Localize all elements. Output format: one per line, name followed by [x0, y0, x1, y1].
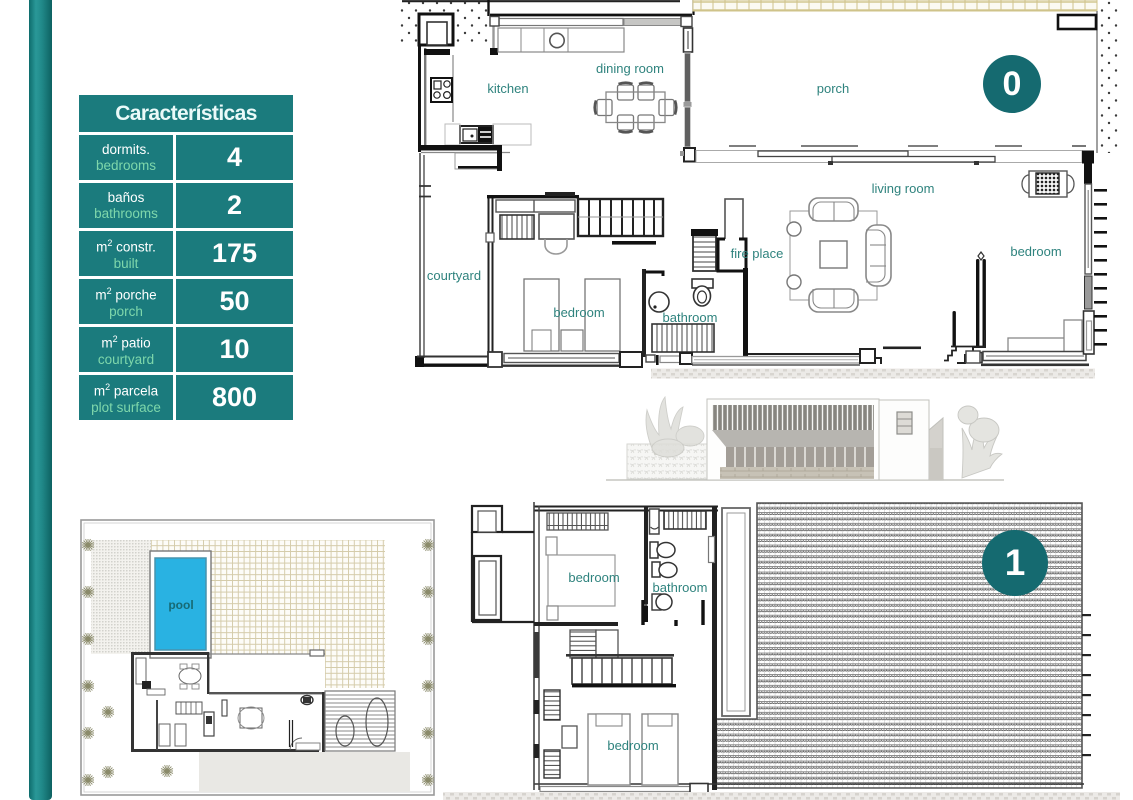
svg-text:fire place: fire place	[731, 246, 784, 261]
svg-text:bedroom: bedroom	[1010, 244, 1061, 259]
svg-text:bathroom: bathroom	[663, 310, 718, 325]
svg-text:dining room: dining room	[596, 61, 664, 76]
svg-text:courtyard: courtyard	[427, 268, 481, 283]
svg-text:bedroom: bedroom	[553, 305, 604, 320]
svg-text:bedroom: bedroom	[607, 738, 658, 753]
svg-text:pool: pool	[168, 598, 193, 612]
svg-text:kitchen: kitchen	[487, 81, 528, 96]
svg-text:bedroom: bedroom	[568, 570, 619, 585]
svg-text:living room: living room	[872, 181, 935, 196]
svg-text:porch: porch	[817, 81, 850, 96]
svg-text:bathroom: bathroom	[653, 580, 708, 595]
